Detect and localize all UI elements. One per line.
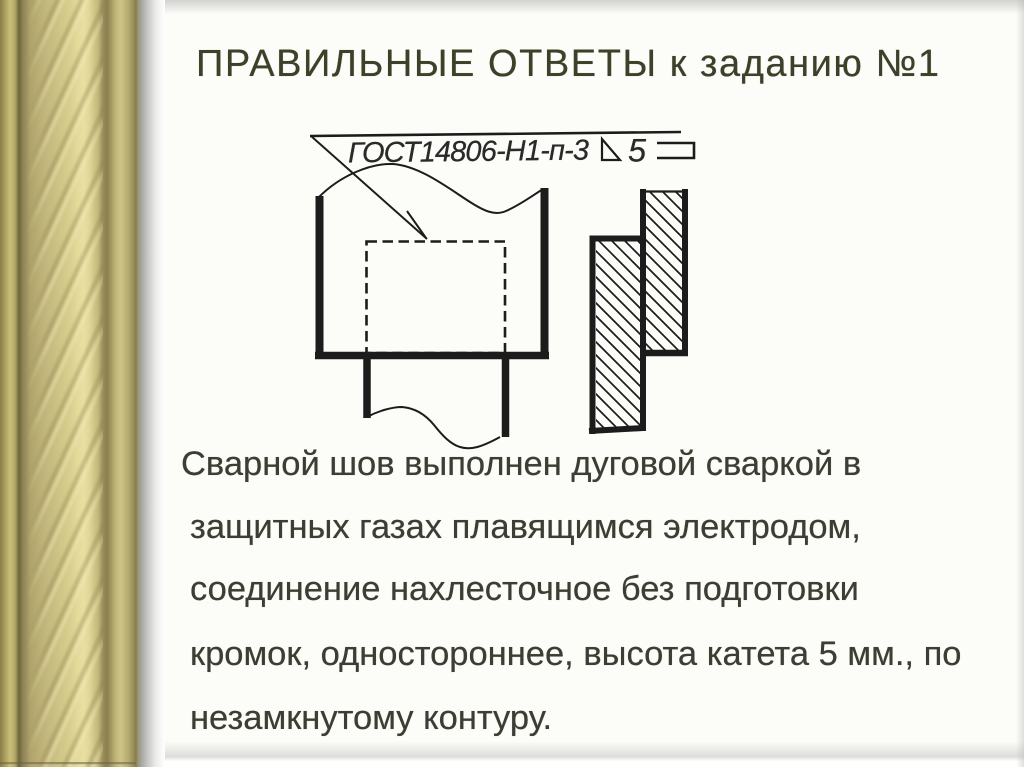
svg-text:ГОСТ14806-Н1-п-3: ГОСТ14806-Н1-п-3: [348, 135, 589, 170]
svg-text:5: 5: [628, 133, 647, 169]
